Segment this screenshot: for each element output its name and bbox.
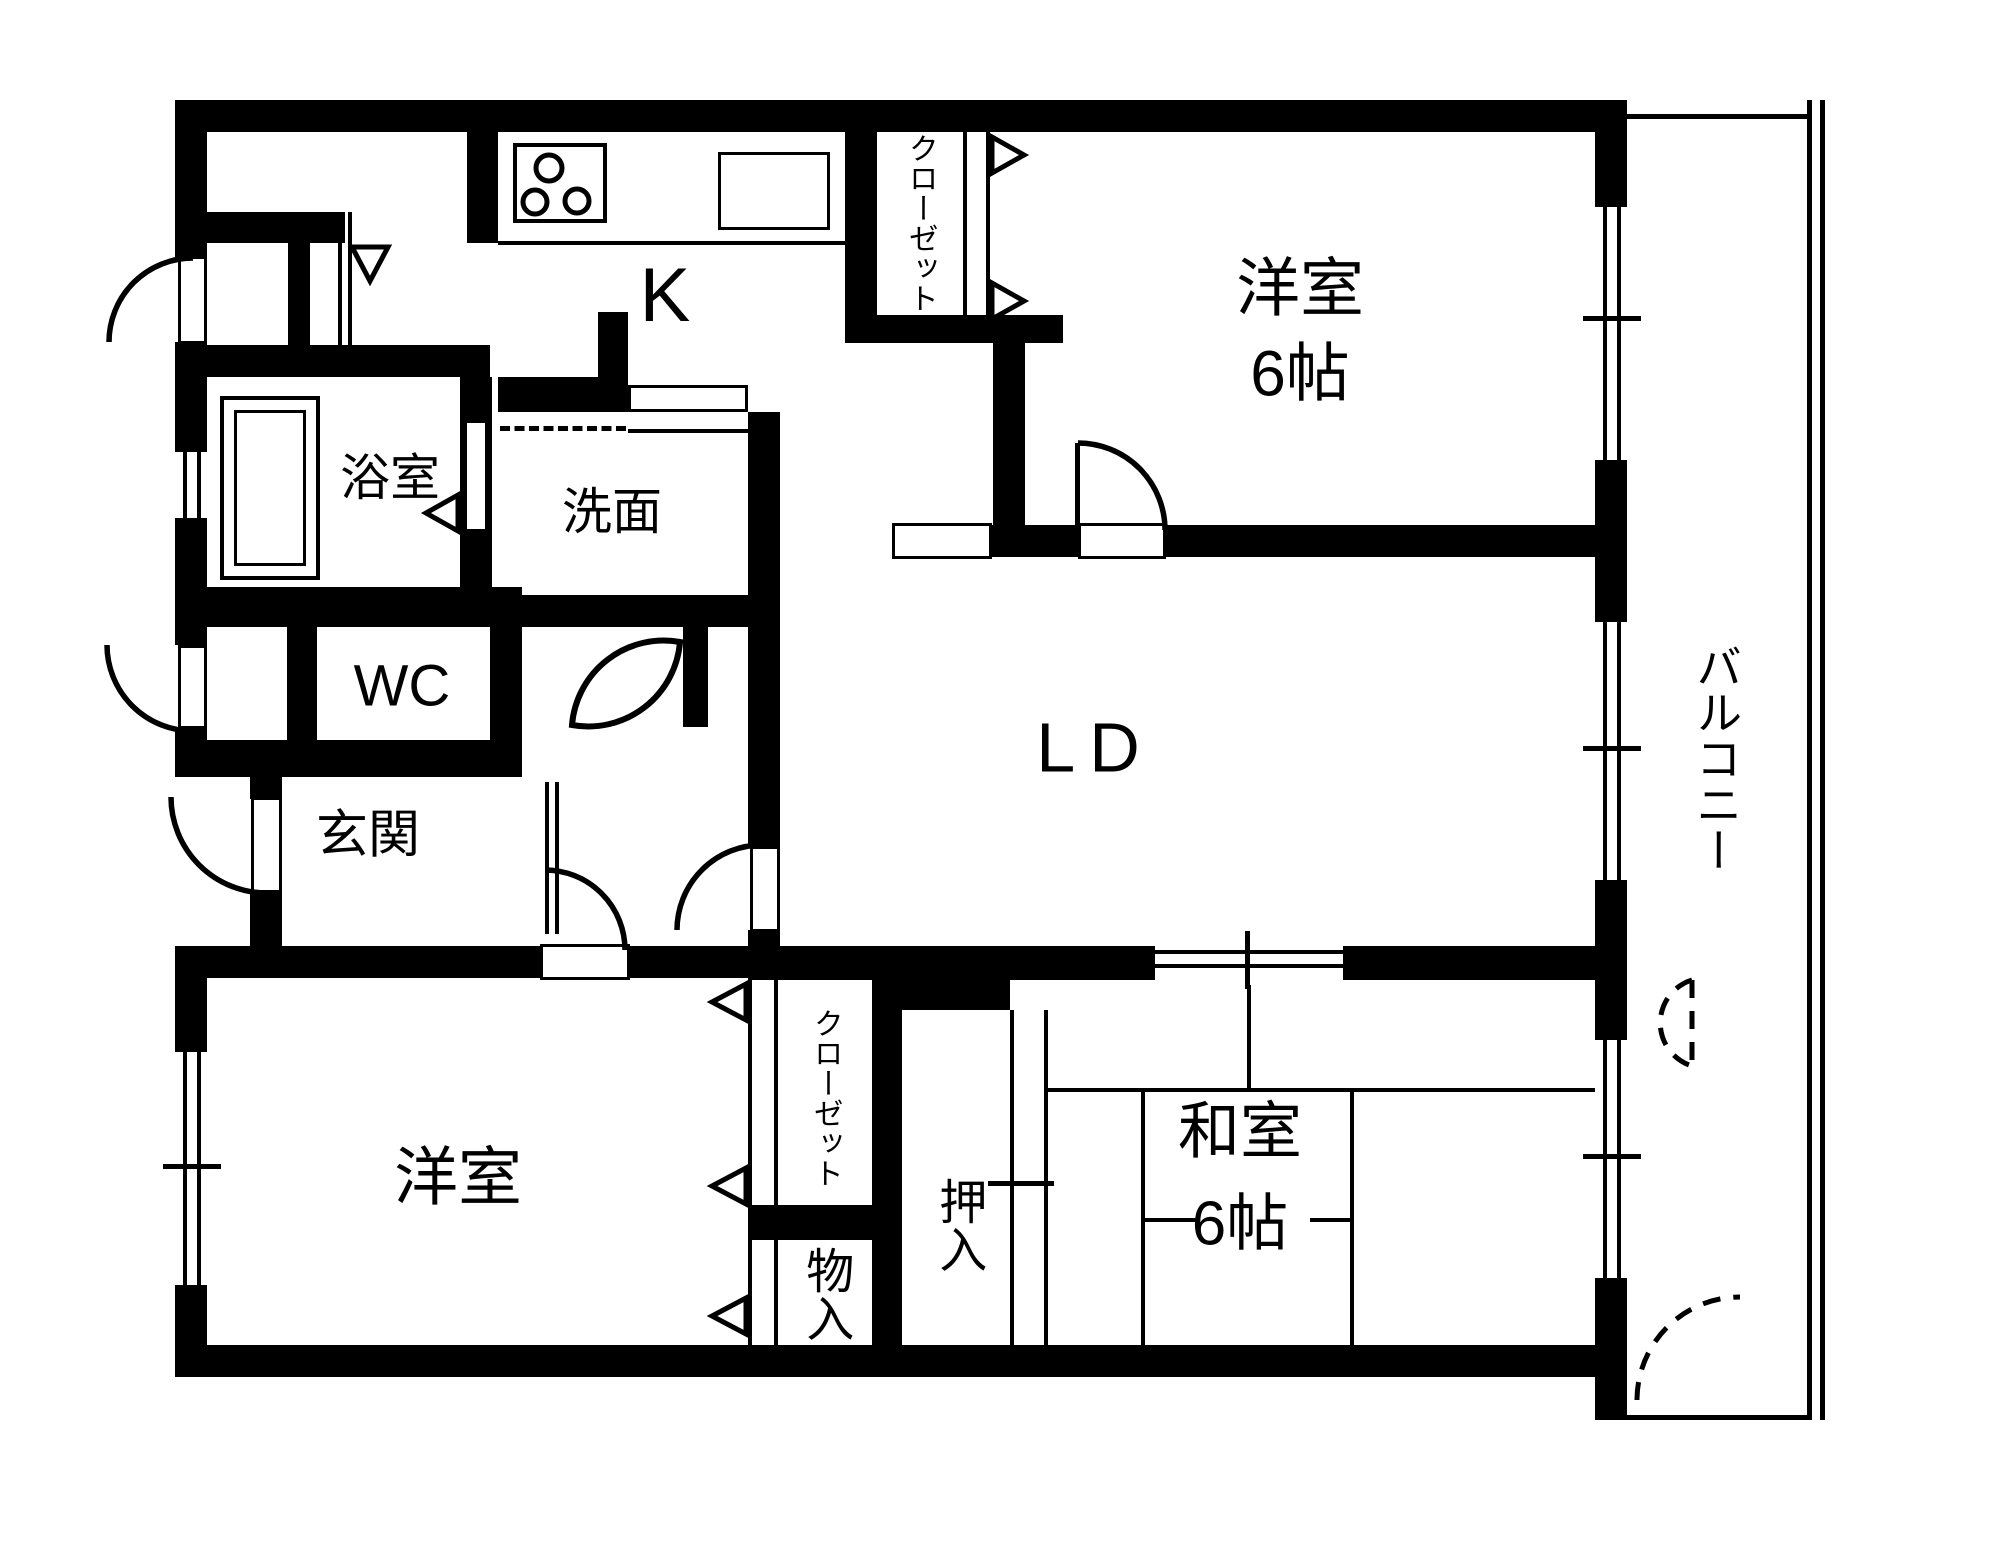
room-label-entrance: 玄関 xyxy=(316,809,420,864)
door-arc-west-room-bottom xyxy=(545,870,625,950)
door-arc-ld xyxy=(677,845,762,930)
slide-arrow-storage xyxy=(712,1298,746,1334)
room-label-closet-bottom: クローゼット xyxy=(809,1008,841,1188)
door-arc-service xyxy=(109,258,193,342)
room-label-kitchen: K xyxy=(640,256,691,336)
room-label-japanese-room: 和室 xyxy=(1178,1099,1302,1164)
room-label-ld: LD xyxy=(1036,711,1153,785)
room-label-oshiire: 押入 xyxy=(932,1177,982,1273)
room-label-balcony: バルコニー xyxy=(1692,643,1740,873)
room-label-storage: 物入 xyxy=(799,1246,849,1342)
room-label-closet-top: クローゼット xyxy=(904,133,936,313)
room-label-west-room-bottom: 洋室 xyxy=(394,1144,522,1211)
door-arc-entrance xyxy=(171,797,267,893)
door-lens-wc-lobby xyxy=(572,641,680,727)
slide-arrow-closet-top-2 xyxy=(992,283,1024,319)
slide-arrow-kitchen-corridor xyxy=(352,247,388,281)
stove-burner xyxy=(565,189,589,213)
room-label-bathroom: 浴室 xyxy=(340,452,440,505)
room-label-west-room-top: 洋室 xyxy=(1236,255,1364,322)
slide-arrow-closet-bottom-1 xyxy=(712,984,746,1020)
room-label-toilet: WC xyxy=(354,657,451,718)
room-size-west-room-top: 6帖 xyxy=(1250,340,1350,407)
room-size-japanese-room: 6帖 xyxy=(1192,1191,1288,1256)
slide-arrow-closet-bottom-2 xyxy=(712,1168,746,1204)
floor-plan: K 洋室 6帖 クローゼット 浴室 洗面 WC 玄関 LD バルコニー 洋室 ク… xyxy=(0,0,1991,1559)
room-label-washroom: 洗面 xyxy=(562,486,662,539)
balcony-partition-arc xyxy=(1637,1297,1740,1400)
door-arc-meterbox xyxy=(107,645,193,731)
slide-arrow-closet-top-1 xyxy=(992,137,1024,173)
stove-burner xyxy=(523,190,547,214)
door-arc-west-room-top xyxy=(1078,443,1165,530)
balcony-hatch-arc xyxy=(1660,980,1692,1066)
stove-burner xyxy=(536,155,562,181)
